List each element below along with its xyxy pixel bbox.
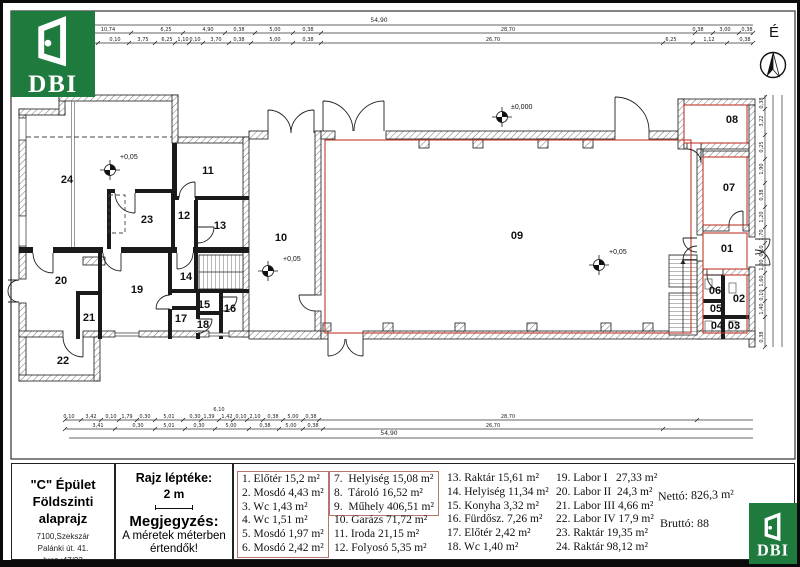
- dimension-label: 0,10: [235, 414, 246, 420]
- dimension-label: 1,12: [703, 37, 714, 43]
- legend-item: 15. Konyha 3,32 m²: [447, 500, 549, 514]
- dbi-logo-top-left: DBI: [11, 11, 95, 97]
- dimension-label: 0,38: [259, 423, 270, 429]
- room-number-label: 16: [224, 303, 236, 315]
- net-area: Nettó: 826,3 m²: [658, 487, 734, 505]
- legend-item: 2. Mosdó 4,43 m²: [242, 487, 324, 501]
- door-knob-icon: [45, 40, 52, 47]
- dimension-label: 26,70: [486, 37, 500, 43]
- building-title: "C" Épület: [12, 476, 114, 493]
- dimension-label: 0,38: [759, 97, 765, 108]
- north-arrow: É: [761, 24, 786, 78]
- room-number-label: 12: [178, 210, 190, 222]
- legend-item: 22. Labor IV 17,9 m²: [556, 513, 657, 527]
- scale-value: 2 m: [116, 487, 232, 501]
- dimension-label: 6,25: [665, 37, 676, 43]
- legend-item: 19. Labor I 27,33 m²: [556, 472, 657, 486]
- dimension-label: 6,25: [160, 27, 171, 33]
- room-number-label: 03: [728, 320, 740, 332]
- dimension-label: 0,10: [189, 37, 200, 43]
- dimension-label: 0,38: [302, 27, 313, 33]
- dim-row-bottom1: 0,103,420,101,790,305,010,301,391,420,10…: [63, 414, 515, 420]
- legend-item: 21. Labor III 4,66 m²: [556, 500, 657, 514]
- room-number-label: 01: [721, 243, 733, 255]
- note-line-1: A méretek méterben: [116, 530, 232, 543]
- dimension-label: 0,38: [741, 27, 752, 33]
- dimension-label: 0,30: [193, 423, 204, 429]
- dimension-label: 0,10: [105, 414, 116, 420]
- room-labels-layer: 0102030405060708091011121314151617181920…: [55, 114, 745, 367]
- dimension-label: 0,38: [307, 423, 318, 429]
- dim-row-top1: 10,746,254,900,385,000,3828,700,383,000,…: [101, 27, 753, 33]
- dimension-label: 3,00: [719, 27, 730, 33]
- plan-frame: [11, 11, 795, 459]
- room-number-label: 24: [61, 174, 74, 186]
- door-knob-icon: [768, 526, 772, 530]
- room-number-label: 05: [710, 303, 722, 315]
- dimension-label: 3,42: [85, 414, 96, 420]
- dimension-label: 0,38: [305, 414, 316, 420]
- drawing-sheet: ±0,000 +0,05 +0,05 +0,05 010203040506070…: [0, 0, 800, 567]
- legend-item: 3. Wc 1,43 m²: [242, 501, 324, 515]
- legend-column-2a: 7. Helyiség 15,08 m²8. Tároló 16,52 m²9.…: [329, 471, 439, 516]
- level-label-0: ±0,000: [511, 104, 532, 111]
- legend-item: 17. Előtér 2,42 m²: [447, 527, 549, 541]
- legend-item: 9. Műhely 406,51 m²: [334, 501, 434, 515]
- dimension-label: 5,01: [163, 414, 174, 420]
- room-number-label: 22: [57, 355, 69, 367]
- dim-row-top2: 6,490,103,756,251,100,103,700,385,000,38…: [75, 37, 750, 43]
- legend-item: 11. Iroda 21,15 m²: [334, 528, 427, 542]
- dimension-label: 0,38: [267, 414, 278, 420]
- note-title: Megjegyzés:: [116, 513, 232, 530]
- dimension-label: 1,42: [221, 414, 232, 420]
- dimension-label: 0,38: [233, 37, 244, 43]
- dimension-label: 1,70: [759, 229, 765, 240]
- dimension-label: 0,30: [132, 423, 143, 429]
- legend-item: 1. Előtér 15,2 m²: [242, 473, 324, 487]
- dimension-label: 1,40: [759, 303, 765, 314]
- dimension-label: 0,30: [189, 414, 200, 420]
- room-number-label: 18: [197, 319, 209, 331]
- dimension-label: 5,00: [269, 27, 280, 33]
- room-number-label: 20: [55, 275, 67, 287]
- legend-item: 7. Helyiség 15,08 m²: [334, 473, 434, 487]
- logo-text: DBI: [757, 541, 789, 560]
- room-number-label: 19: [131, 284, 143, 296]
- compass-needle-light: [773, 52, 780, 77]
- dimension-label: 10,74: [101, 27, 115, 33]
- outer-walls-layer: [19, 95, 755, 381]
- dimension-label: 1,90: [759, 163, 765, 174]
- level-label-1: +0,05: [120, 154, 138, 161]
- room-number-label: 09: [511, 230, 523, 242]
- legend-column-3: 13. Raktár 15,61 m²14. Helyiség 11,34 m²…: [447, 472, 549, 555]
- dimension-label: 0,38: [759, 331, 765, 342]
- dbi-logo-bottom-right: DBI: [749, 503, 797, 565]
- room-number-label: 21: [83, 312, 95, 324]
- legend-item: 4. Wc 1,51 m²: [242, 514, 324, 528]
- level-label-2: +0,05: [283, 256, 301, 263]
- dim-row-right: 0,383,220,251,900,381,201,700,101,001,60…: [759, 97, 765, 342]
- legend-item: 13. Raktár 15,61 m²: [447, 472, 549, 486]
- dim-row-bottom2: 3,410,305,010,305,000,385,000,3826,70: [92, 423, 500, 429]
- dimension-label: 0,38: [302, 37, 313, 43]
- room-legend: 1. Előtér 15,2 m²2. Mosdó 4,43 m²3. Wc 1…: [233, 463, 795, 560]
- dimension-label: 26,70: [486, 423, 500, 429]
- legend-item: 18. Wc 1,40 m²: [447, 541, 549, 555]
- dimension-label: 28,70: [501, 27, 515, 33]
- dimension-label: 1,20: [759, 211, 765, 222]
- dimension-label: 0,10: [759, 245, 765, 256]
- room-number-label: 23: [141, 214, 153, 226]
- dimension-label: 28,70: [501, 414, 515, 420]
- dimension-label: 0,38: [759, 189, 765, 200]
- dimension-label: 6,25: [161, 37, 172, 43]
- legend-column-2b: 10. Garázs 71,72 m²11. Iroda 21,15 m²12.…: [334, 514, 427, 555]
- legend-item: 16. Fürdősz. 7,26 m²: [447, 513, 549, 527]
- room-number-label: 04: [711, 320, 724, 332]
- room-number-label: 10: [275, 232, 287, 244]
- legend-item: 20. Labor II 24,3 m²: [556, 486, 657, 500]
- dimension-label: 0,10: [109, 37, 120, 43]
- legend-item: 14. Helyiség 11,34 m²: [447, 486, 549, 500]
- room-number-label: 02: [733, 293, 745, 305]
- title-block: "C" Épület Földszinti alaprajz 7100,Szek…: [11, 463, 115, 560]
- dim-total-bottom: 54,90: [380, 430, 397, 437]
- dimension-label: 5,00: [285, 423, 296, 429]
- gross-area: Bruttó: 88: [660, 516, 709, 531]
- room-number-label: 14: [180, 271, 193, 283]
- dimension-label: 0,38: [233, 27, 244, 33]
- dim-total-top: 54,90: [370, 17, 387, 24]
- dimension-label: 0,30: [139, 414, 150, 420]
- dimension-label: 1,79: [121, 414, 132, 420]
- room-number-label: 07: [723, 182, 735, 194]
- legend-item: 10. Garázs 71,72 m²: [334, 514, 427, 528]
- room-number-label: 13: [214, 220, 226, 232]
- dimension-label: 2,10: [249, 414, 260, 420]
- room-number-label: 17: [175, 313, 187, 325]
- legend-item: 23. Raktár 19,35 m²: [556, 527, 657, 541]
- dimension-label: 0,25: [759, 141, 765, 152]
- dimension-label: 3,75: [137, 37, 148, 43]
- room-number-label: 06: [709, 285, 721, 297]
- dimension-label: 3,70: [210, 37, 221, 43]
- dimension-label: 5,01: [163, 423, 174, 429]
- dimension-label: 0,38: [692, 27, 703, 33]
- address-line-1: 7100,Szekszár: [12, 531, 114, 543]
- north-label: É: [769, 24, 779, 41]
- room-number-label: 11: [202, 165, 214, 177]
- stairs-layer: [199, 255, 697, 335]
- door-icon: [41, 20, 63, 62]
- scale-note-block: Rajz léptéke: 2 m Megjegyzés: A méretek …: [115, 463, 233, 560]
- dimension-label: 3,22: [759, 115, 765, 126]
- legend-item: 5. Mosdó 1,97 m²: [242, 528, 324, 542]
- scale-label: Rajz léptéke:: [116, 471, 232, 485]
- dimension-label: 1,60: [759, 275, 765, 286]
- dimension-label: 0,10: [759, 289, 765, 300]
- sheet-bottom-border: [3, 560, 800, 567]
- room-number-label: 15: [198, 299, 210, 311]
- legend-column-4: 19. Labor I 27,33 m²20. Labor II 24,3 m²…: [556, 472, 657, 555]
- address-line-2: Palánki út. 41.: [12, 543, 114, 555]
- dimension-label: 1,39: [203, 414, 214, 420]
- compass-needle-dark: [767, 52, 774, 77]
- dimension-label: 1,10: [177, 37, 188, 43]
- drawing-title: Földszinti alaprajz: [12, 493, 114, 527]
- legend-item: 24. Raktár 98,12 m²: [556, 541, 657, 555]
- dimension-label: 4,90: [202, 27, 213, 33]
- partition-walls-layer: [19, 101, 749, 339]
- level-label-3: +0,05: [609, 249, 627, 256]
- dimension-label: 0,10: [63, 414, 74, 420]
- dimension-label: 0,38: [739, 37, 750, 43]
- dimension-label: 1,00: [759, 259, 765, 270]
- door-icon: [766, 515, 778, 539]
- legend-item: 6. Mosdó 2,42 m²: [242, 542, 324, 556]
- highlight-room-09: [325, 140, 691, 333]
- dimension-label: 5,00: [269, 37, 280, 43]
- room-number-label: 08: [726, 114, 738, 126]
- scale-bar: [155, 502, 193, 509]
- dimension-label: 5,00: [225, 423, 236, 429]
- legend-item: 12. Folyosó 5,35 m²: [334, 542, 427, 556]
- legend-column-1: 1. Előtér 15,2 m²2. Mosdó 4,43 m²3. Wc 1…: [237, 471, 329, 558]
- legend-item: 8. Tároló 16,52 m²: [334, 487, 434, 501]
- logo-text: DBI: [28, 71, 78, 97]
- note-line-2: értendők!: [116, 543, 232, 556]
- dimension-label: 3,41: [92, 423, 103, 429]
- dimension-label: 5,00: [287, 414, 298, 420]
- dim-extra: 6,10: [213, 407, 224, 413]
